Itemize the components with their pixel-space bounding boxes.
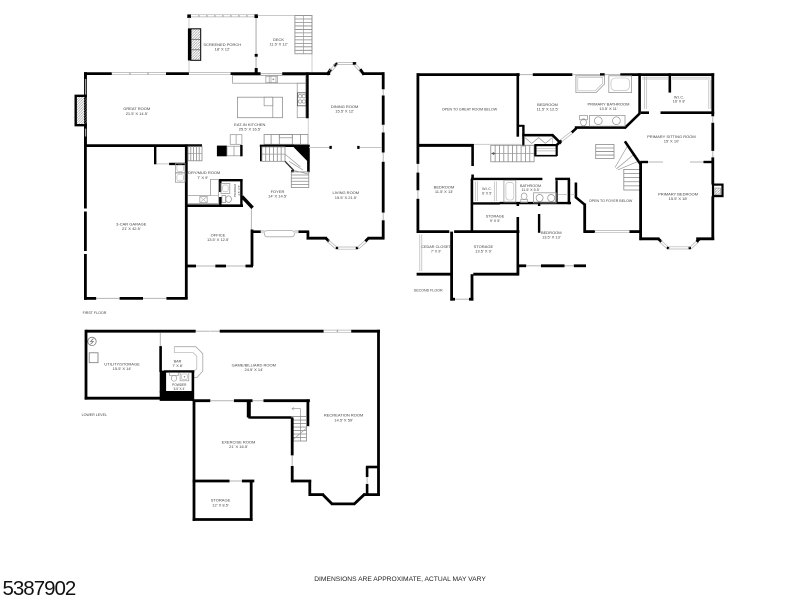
svg-text:5387902: 5387902 bbox=[3, 577, 76, 600]
svg-text:13.5' X 12.5': 13.5' X 12.5' bbox=[207, 237, 229, 242]
svg-text:18' X 12': 18' X 12' bbox=[215, 47, 231, 52]
svg-text:24.5' X 14': 24.5' X 14' bbox=[244, 367, 263, 372]
svg-text:4.5' X 5': 4.5' X 5' bbox=[237, 185, 241, 196]
svg-text:15' X 10': 15' X 10' bbox=[664, 139, 680, 144]
svg-text:13.5' X 11': 13.5' X 11' bbox=[599, 106, 618, 111]
svg-text:OPEN TO GREAT ROOM BELOW: OPEN TO GREAT ROOM BELOW bbox=[442, 108, 498, 112]
svg-text:W.I.C.: W.I.C. bbox=[674, 95, 684, 99]
svg-text:STORAGE: STORAGE bbox=[486, 214, 505, 218]
svg-text:21.5' X 14.5': 21.5' X 14.5' bbox=[126, 111, 148, 116]
svg-text:CEDAR CLOSET: CEDAR CLOSET bbox=[421, 245, 451, 249]
svg-text:14' X 14.5': 14' X 14.5' bbox=[268, 194, 287, 199]
svg-text:SECOND FLOOR: SECOND FLOOR bbox=[414, 288, 443, 292]
svg-text:11.5' X 5.5': 11.5' X 5.5' bbox=[522, 188, 540, 192]
svg-text:12' X 8.5': 12' X 8.5' bbox=[212, 502, 229, 507]
svg-text:15.5' X 18': 15.5' X 18' bbox=[669, 196, 688, 201]
svg-text:7' X 9': 7' X 9' bbox=[197, 175, 208, 180]
svg-text:25.5' X 16.5': 25.5' X 16.5' bbox=[239, 127, 261, 132]
svg-text:6' X 5': 6' X 5' bbox=[482, 191, 492, 195]
svg-text:21' X 16.5': 21' X 16.5' bbox=[229, 444, 248, 449]
svg-text:OPEN TO FOYER BELOW: OPEN TO FOYER BELOW bbox=[589, 199, 633, 203]
svg-text:13.5' X 13': 13.5' X 13' bbox=[542, 235, 561, 240]
svg-text:14.5' X 59': 14.5' X 59' bbox=[334, 417, 353, 422]
svg-text:15.5' X 14': 15.5' X 14' bbox=[113, 366, 132, 371]
svg-text:7' X 9': 7' X 9' bbox=[431, 249, 442, 253]
svg-text:FIRST FLOOR: FIRST FLOOR bbox=[83, 311, 107, 315]
svg-text:16' X 8': 16' X 8' bbox=[673, 100, 686, 104]
svg-text:DIMENSIONS ARE APPROXIMATE, AC: DIMENSIONS ARE APPROXIMATE, ACTUAL MAY V… bbox=[314, 576, 486, 583]
svg-text:13.5' X 9': 13.5' X 9' bbox=[475, 249, 492, 254]
svg-text:LOWER LEVEL: LOWER LEVEL bbox=[82, 413, 107, 417]
svg-text:15.5' X 21.5': 15.5' X 21.5' bbox=[335, 195, 357, 200]
svg-text:11.5' X 12': 11.5' X 12' bbox=[269, 42, 288, 47]
svg-text:5.5' X 4': 5.5' X 4' bbox=[174, 387, 186, 391]
svg-text:W.I.C.: W.I.C. bbox=[482, 187, 492, 191]
svg-text:9' X 5': 9' X 5' bbox=[490, 219, 501, 223]
svg-text:7' X 8': 7' X 8' bbox=[172, 364, 183, 368]
svg-text:BATHROOM: BATHROOM bbox=[520, 184, 541, 188]
svg-text:BAR: BAR bbox=[174, 360, 182, 364]
svg-text:11.5' X 12.5': 11.5' X 12.5' bbox=[537, 107, 559, 112]
svg-text:15.5' X 12': 15.5' X 12' bbox=[335, 109, 354, 114]
svg-text:21' X 42.5': 21' X 42.5' bbox=[122, 226, 141, 231]
svg-text:11.5' X 13': 11.5' X 13' bbox=[435, 189, 454, 194]
